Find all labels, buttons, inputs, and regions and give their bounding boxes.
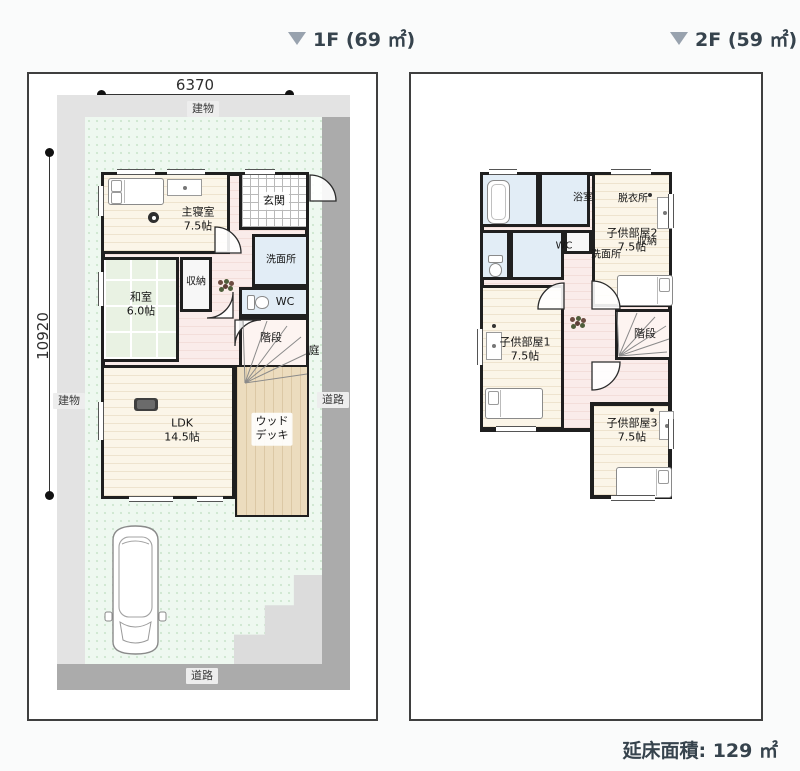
window <box>98 402 104 440</box>
sofa-icon <box>134 398 158 411</box>
room-label-ldk: LDK 14.5帖 <box>164 417 200 446</box>
floor2-header[interactable]: 2F (59 ㎡) <box>670 25 797 52</box>
window <box>668 419 674 449</box>
room-label-child3: 子供部屋3 7.5帖 <box>607 417 658 446</box>
room-wc-1f <box>239 287 309 317</box>
room-washroom-2f <box>510 230 564 280</box>
width-dimension-label: 6370 <box>165 76 225 94</box>
floor1-plan-panel: 6370 10920 建物 建物 道路 道路 主寝室 <box>27 72 378 721</box>
room-label-wc-1f: WC <box>276 295 295 309</box>
dimension-dot <box>45 148 54 157</box>
floor2-header-label: 2F (59 ㎡) <box>695 25 797 52</box>
floor2-plan-panel: 浴室 脱衣所 WC 洗面所 収納 子供部屋2 <box>409 72 763 721</box>
window <box>245 169 275 175</box>
window <box>611 495 655 501</box>
building-label-top: 建物 <box>187 101 219 117</box>
room-label-child2: 子供部屋2 7.5帖 <box>607 227 658 256</box>
window <box>167 169 205 175</box>
road-label-bottom: 道路 <box>186 668 218 684</box>
dimension-dot <box>45 491 54 500</box>
plant-icon <box>571 317 583 329</box>
ceiling-light-icon <box>492 324 496 328</box>
room-label-wc-2f: WC <box>556 240 573 253</box>
ceiling-light-icon <box>650 408 654 412</box>
room-label-child1: 子供部屋1 7.5帖 <box>500 336 551 365</box>
room-bathroom <box>480 172 539 227</box>
window <box>489 169 517 175</box>
room-label-dressing: 脱衣所 <box>618 193 648 206</box>
window <box>477 329 483 365</box>
height-dimension-label: 10920 <box>34 306 52 366</box>
bed-icon <box>616 467 672 498</box>
garden-label: 庭 <box>309 344 320 358</box>
road-label-right: 道路 <box>317 392 349 408</box>
bathtub-icon <box>487 180 510 224</box>
room-wc-2f <box>480 230 510 280</box>
total-floor-area-label: 延床面積: 129 ㎡ <box>623 736 779 763</box>
ceiling-light-icon <box>148 212 159 223</box>
room-label-wood-deck: ウッド デッキ <box>252 413 293 446</box>
window <box>98 186 104 216</box>
building-label-left: 建物 <box>53 393 85 409</box>
window <box>98 272 104 306</box>
room-label-entrance: 玄関 <box>259 192 289 210</box>
room-label-master-bedroom: 主寝室 7.5帖 <box>182 206 215 235</box>
window <box>197 496 223 502</box>
floor1-header[interactable]: 1F (69 ㎡) <box>288 25 415 52</box>
room-label-japanese-room: 和室 6.0帖 <box>127 291 156 320</box>
bed-icon <box>108 178 164 205</box>
floor1-header-label: 1F (69 ㎡) <box>313 25 415 52</box>
toilet-icon <box>487 255 503 277</box>
room-label-stairs-1f: 階段 <box>260 331 282 345</box>
room-label-storage-1f: 収納 <box>186 276 206 289</box>
triangle-down-icon <box>670 32 688 45</box>
triangle-down-icon <box>288 32 306 45</box>
bed-icon <box>485 388 543 419</box>
bed-icon <box>617 275 673 306</box>
room-label-washroom-1f: 洗面所 <box>266 254 296 267</box>
room-label-stairs-2f: 階段 <box>634 327 656 341</box>
ceiling-light-icon <box>648 193 652 197</box>
plant-icon <box>219 280 231 292</box>
floorplan-page: 1F (69 ㎡) 2F (59 ㎡) 6370 10920 建物 建物 道路 … <box>0 0 800 771</box>
window <box>611 169 651 175</box>
desk-icon <box>167 179 202 196</box>
window <box>117 169 155 175</box>
toilet-icon <box>247 295 269 311</box>
window <box>129 496 173 502</box>
room-label-bathroom: 浴室 <box>573 192 593 205</box>
window <box>668 194 674 228</box>
window <box>496 426 536 432</box>
